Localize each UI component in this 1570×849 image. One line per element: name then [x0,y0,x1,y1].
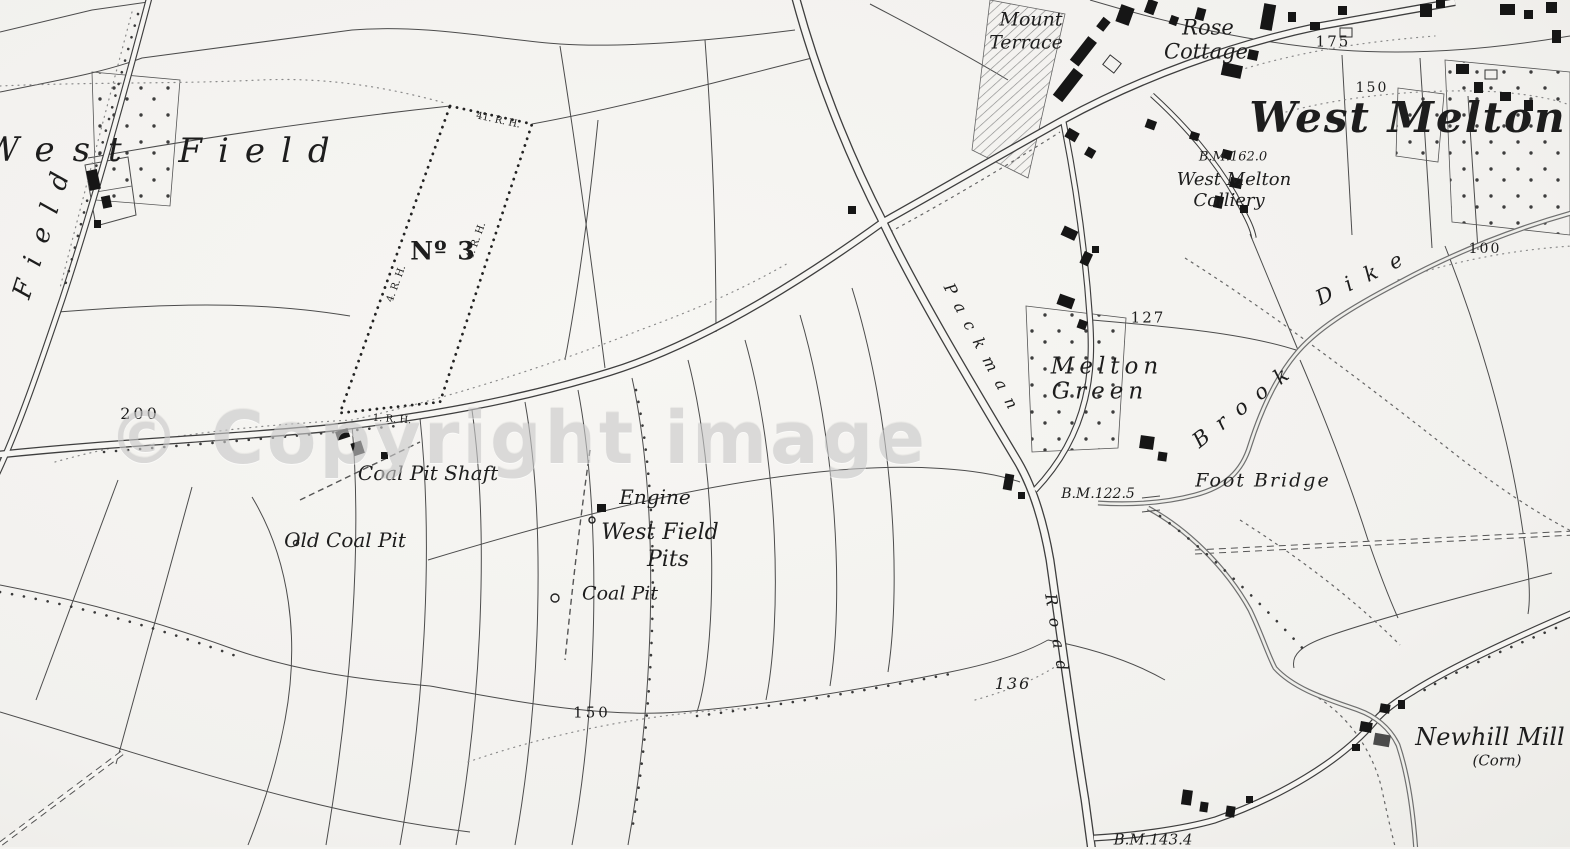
roads [0,0,1570,847]
streams [1098,212,1570,847]
road-fills [0,0,1570,847]
no3-enclosure [340,106,532,413]
map-viewport: MountTerraceRoseCottage175150West Melton… [0,0,1570,847]
road-casings [0,0,1570,847]
field-boundaries [0,0,1570,845]
map-canvas [0,0,1570,847]
hedgerows [0,14,1556,830]
pit-symbols [294,517,596,602]
hatched-allotments [972,0,1065,178]
